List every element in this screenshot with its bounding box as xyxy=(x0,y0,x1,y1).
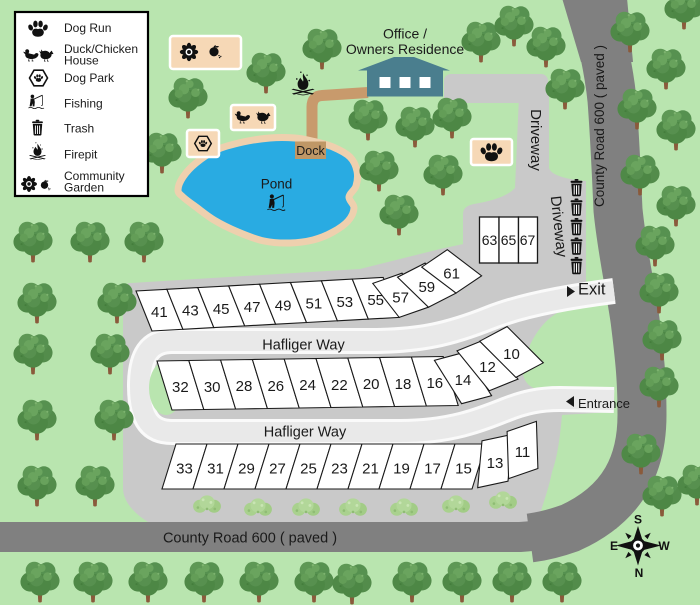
svg-text:24: 24 xyxy=(299,377,316,394)
svg-text:10: 10 xyxy=(503,346,520,363)
svg-text:49: 49 xyxy=(275,297,292,314)
svg-text:31: 31 xyxy=(207,461,224,478)
svg-text:County Road 600 ( paved ): County Road 600 ( paved ) xyxy=(592,45,607,207)
svg-text:65: 65 xyxy=(501,232,517,248)
svg-text:45: 45 xyxy=(213,301,230,318)
svg-text:Trash: Trash xyxy=(64,122,94,136)
svg-text:Firepit: Firepit xyxy=(64,148,98,162)
svg-text:House: House xyxy=(64,54,99,68)
svg-text:21: 21 xyxy=(362,461,379,478)
svg-text:Dog Run: Dog Run xyxy=(64,21,111,35)
svg-text:61: 61 xyxy=(443,265,460,282)
svg-text:S: S xyxy=(634,513,642,527)
svg-text:63: 63 xyxy=(482,232,498,248)
svg-text:29: 29 xyxy=(238,461,255,478)
svg-text:E: E xyxy=(610,539,618,553)
svg-text:13: 13 xyxy=(487,455,504,472)
svg-text:Hafliger Way: Hafliger Way xyxy=(264,425,347,441)
svg-text:53: 53 xyxy=(336,294,353,311)
svg-text:28: 28 xyxy=(236,378,253,395)
svg-text:Owners Residence: Owners Residence xyxy=(346,41,464,57)
svg-text:19: 19 xyxy=(393,461,410,478)
svg-text:47: 47 xyxy=(244,299,261,316)
svg-text:N: N xyxy=(635,566,644,580)
svg-text:11: 11 xyxy=(515,444,531,461)
svg-text:22: 22 xyxy=(331,377,348,394)
svg-text:Office /: Office / xyxy=(383,26,427,42)
svg-text:41: 41 xyxy=(151,304,168,321)
svg-text:17: 17 xyxy=(424,461,441,478)
svg-text:15: 15 xyxy=(455,461,472,478)
svg-text:Dog Park: Dog Park xyxy=(64,71,115,85)
svg-text:59: 59 xyxy=(418,279,435,296)
svg-text:25: 25 xyxy=(300,461,317,478)
svg-text:12: 12 xyxy=(479,359,496,376)
svg-text:67: 67 xyxy=(520,232,536,248)
svg-text:Entrance: Entrance xyxy=(578,396,630,411)
svg-text:14: 14 xyxy=(455,372,472,389)
svg-text:51: 51 xyxy=(306,296,323,313)
svg-text:32: 32 xyxy=(172,379,189,396)
svg-text:33: 33 xyxy=(176,461,193,478)
svg-text:Hafliger Way: Hafliger Way xyxy=(262,338,345,354)
svg-text:Dock: Dock xyxy=(296,144,325,158)
svg-text:57: 57 xyxy=(392,289,409,306)
svg-text:23: 23 xyxy=(331,461,348,478)
svg-text:Garden: Garden xyxy=(64,181,104,195)
svg-text:W: W xyxy=(658,539,670,553)
svg-text:Driveway: Driveway xyxy=(527,109,544,171)
svg-text:16: 16 xyxy=(426,375,443,392)
svg-text:43: 43 xyxy=(182,303,199,320)
svg-text:Exit: Exit xyxy=(578,281,606,299)
svg-text:26: 26 xyxy=(267,378,284,395)
svg-text:20: 20 xyxy=(363,376,380,393)
svg-text:County Road 600 ( paved ): County Road 600 ( paved ) xyxy=(163,531,337,547)
svg-text:27: 27 xyxy=(269,461,286,478)
svg-text:Pond: Pond xyxy=(261,177,293,192)
svg-text:Fishing: Fishing xyxy=(64,97,103,111)
svg-text:30: 30 xyxy=(204,379,221,396)
svg-text:18: 18 xyxy=(395,376,412,393)
